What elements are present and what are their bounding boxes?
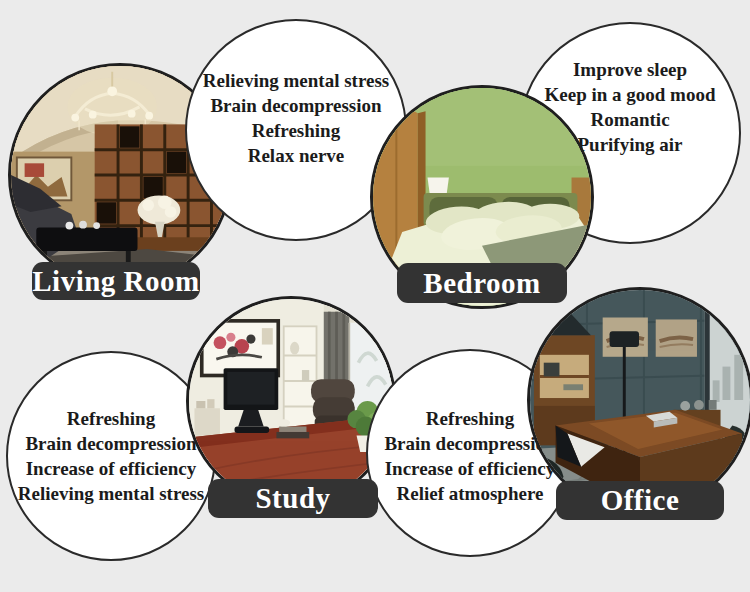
- benefit-line: Relieving mental stress: [203, 68, 389, 93]
- living-room-label: Living Room: [32, 262, 200, 300]
- study-illustration: [189, 299, 393, 503]
- study-photo: [186, 296, 396, 506]
- benefit-line: Relieving mental stress: [18, 481, 204, 506]
- benefit-line: Increase of efficiency: [385, 456, 556, 481]
- office-illustration: [530, 290, 750, 510]
- benefit-line: Brain decompression: [25, 431, 196, 456]
- benefit-line: Relax nerve: [248, 143, 345, 168]
- benefit-line: Refreshing: [426, 406, 514, 431]
- benefit-line: Improve sleep: [573, 57, 687, 82]
- benefit-line: Refreshing: [252, 118, 340, 143]
- benefit-line: Increase of efficiency: [26, 456, 197, 481]
- bedroom-label: Bedroom: [397, 263, 567, 303]
- benefit-line: Keep in a good mood: [544, 82, 715, 107]
- study-benefits-bubble: Refreshing Brain decompression Increase …: [6, 351, 216, 561]
- office-photo: [527, 287, 750, 513]
- benefits-infographic: Relieving mental stress Brain decompress…: [0, 0, 750, 592]
- study-label: Study: [208, 479, 378, 518]
- benefit-line: Purifying air: [577, 132, 682, 157]
- office-label: Office: [556, 481, 724, 520]
- benefit-line: Relief atmosphere: [397, 481, 544, 506]
- benefit-line: Romantic: [590, 107, 669, 132]
- benefit-line: Refreshing: [67, 406, 155, 431]
- benefit-line: Brain decompression: [210, 93, 381, 118]
- benefit-line: Brain decompression: [384, 431, 555, 456]
